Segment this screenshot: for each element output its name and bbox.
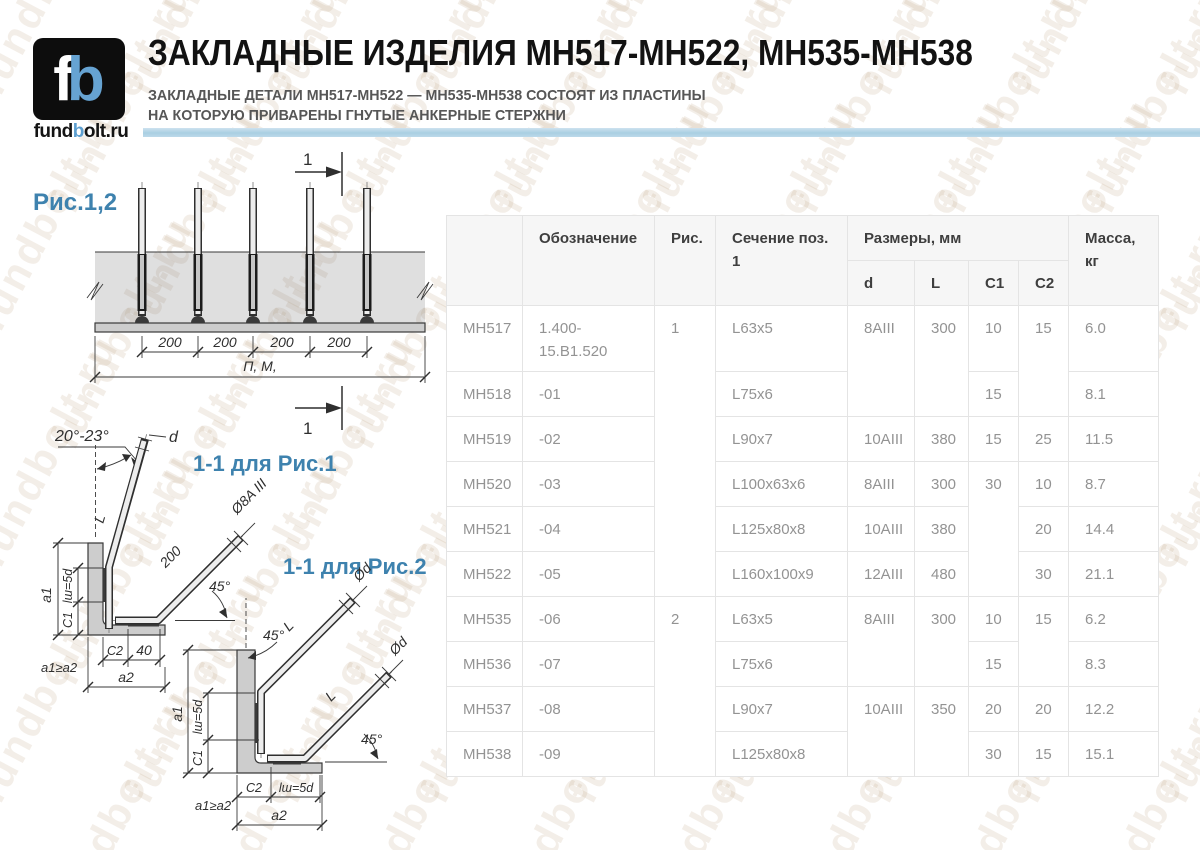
cell-d: 8AIII [848,306,915,417]
cell-d: 8AIII [848,462,915,507]
cell-section: L100x63x6 [716,462,848,507]
cell-c2: 15 [1019,597,1069,687]
cell-section: L63x5 [716,597,848,642]
cell-c2: 30 [1019,552,1069,597]
page-title: ЗАКЛАДНЫЕ ИЗДЕЛИЯ МН517-МН522, МН535-МН5… [148,32,973,74]
cell-c2: 25 [1019,417,1069,462]
table-row-mn517: МН517 1.400-15.В1.520 1 L63x5 8AIII 300 … [447,306,1159,372]
cell-l: 300 [915,462,969,507]
dim-a2-fig1-label: а2 [118,669,134,685]
logo-site-b: b [73,121,84,142]
cell-mass: 6.2 [1069,597,1159,642]
cell-c2: 10 [1019,462,1069,507]
cell-mass: 14.4 [1069,507,1159,552]
col-header-c2: C2 [1019,261,1069,306]
cell-designation: 1.400-15.В1.520 [523,306,655,372]
fig12-label: Рис.1,2 [33,189,117,216]
cell-mass: 8.1 [1069,372,1159,417]
cell-c2: 15 [1019,306,1069,417]
cell-name: МН537 [447,687,523,732]
cell-d: 10AIII [848,507,915,552]
section-cut-top-label: 1 [303,150,312,169]
cell-c1: 10 [969,306,1019,372]
cell-designation: -06 [523,597,655,642]
dim-phid-rod2-label: Ød [385,633,411,659]
dim-200-3: 200 [269,334,294,350]
cell-designation: -05 [523,552,655,597]
dim-phi8a-label: Ø8A III [227,475,270,518]
note-a1-ge-a2-fig1: а1≥а2 [41,660,78,675]
col-header-designation: Обозначение [523,216,655,306]
section-1-1-fig1-title: 1-1 для Рис.1 [193,451,337,476]
table-row-mn522: МН522 -05 L160x100x9 12AIII 480 30 21.1 [447,552,1159,597]
cell-name: МН520 [447,462,523,507]
cell-d: 12AIII [848,552,915,597]
fundbolt-logo: fb [33,38,125,120]
table-row-mn521: МН521 -04 L125x80x8 10AIII 380 20 14.4 [447,507,1159,552]
cell-l: 300 [915,306,969,417]
cell-mass: 11.5 [1069,417,1159,462]
col-header-d: d [848,261,915,306]
cell-designation: -03 [523,462,655,507]
cell-designation: -02 [523,417,655,462]
note-a1-ge-a2-fig2: а1≥а2 [195,798,232,813]
cell-c2: 20 [1019,687,1069,732]
cell-d: 10AIII [848,417,915,462]
dim-a2-fig2-label: а2 [271,807,287,823]
cell-l: 300 [915,597,969,687]
dim-200-2: 200 [212,334,237,350]
cell-mass: 15.1 [1069,732,1159,777]
page-subtitle: ЗАКЛАДНЫЕ ДЕТАЛИ МН517-МН522 — МН535-МН5… [148,86,706,126]
col-header-l: L [915,261,969,306]
cell-section: L63x5 [716,306,848,372]
table-row-mn520: МН520 -03 L100x63x6 8AIII 300 30 10 8.7 [447,462,1159,507]
dim-40-label: 40 [136,642,152,658]
cell-section: L125x80x8 [716,507,848,552]
dim-c2-fig1-label: С2 [107,644,123,658]
cell-mass: 8.7 [1069,462,1159,507]
table-row-mn519: МН519 -02 L90x7 10AIII 380 15 25 11.5 [447,417,1159,462]
cell-c1: 30 [969,462,1019,597]
dim-200-4: 200 [326,334,351,350]
dim-c1-fig1-label: С1 [61,612,75,628]
table-row-mn538: МН538 -09 L125x80x8 30 15 15.1 [447,732,1159,777]
dim-a1-fig1-label: а1 [38,587,54,603]
dim-200-1: 200 [157,334,182,350]
logo-site-pre: fund [34,121,73,142]
dim-L-fig1-label: L [91,513,109,525]
section-1-1-fig2-drawing: 1-1 для Рис.2 Ød L 45° Ød [175,540,485,850]
cell-c2: 20 [1019,507,1069,552]
col-header-mass: Масса, кг [1069,216,1159,306]
cell-section: L75x6 [716,372,848,417]
cell-section: L160x100x9 [716,552,848,597]
cell-designation: -09 [523,732,655,777]
cell-designation: -04 [523,507,655,552]
header-divider-bar [143,128,1200,137]
col-header-empty [447,216,523,306]
cell-section: L90x7 [716,417,848,462]
cell-c1: 10 [969,597,1019,642]
cell-c2: 15 [1019,732,1069,777]
cell-l: 380 [915,417,969,462]
cell-fig: 2 [655,597,716,777]
dim-a1-fig2-label: а1 [169,706,185,722]
cell-name: МН522 [447,552,523,597]
cell-mass: 6.0 [1069,306,1159,372]
cell-mass: 12.2 [1069,687,1159,732]
figure-plan-drawing: Рис.1,2 1 200 [25,140,445,440]
cell-name: МН519 [447,417,523,462]
dim-c1-fig2-label: С1 [191,750,205,766]
cell-l: 350 [915,687,969,777]
cell-name: МН517 [447,306,523,372]
cell-designation: -08 [523,687,655,732]
cell-name: МН536 [447,642,523,687]
cell-c1: 15 [969,642,1019,687]
spec-table: Обозначение Рис. Сечение поз. 1 Размеры,… [446,215,1159,777]
col-header-sizes: Размеры, мм [848,216,1069,261]
dim-45-rod1-label: 45° [263,627,285,643]
table-row-mn535: МН535 -06 2 L63x5 8AIII 300 10 15 6.2 [447,597,1159,642]
cell-c1: 15 [969,372,1019,417]
col-header-section: Сечение поз. 1 [716,216,848,306]
cell-d: 8AIII [848,597,915,687]
cell-designation: -01 [523,372,655,417]
catalog-page: fundbolt.rufundbolt.rufundbolt.rufundbol… [0,0,1200,850]
col-header-fig: Рис. [655,216,716,306]
subtitle-line-1: ЗАКЛАДНЫЕ ДЕТАЛИ МН517-МН522 — МН535-МН5… [148,87,706,104]
cell-section: L90x7 [716,687,848,732]
cell-l: 380 [915,507,969,552]
dim-lsh-left-fig2-label: lш=5d [191,699,205,734]
col-header-c1: C1 [969,261,1019,306]
cell-designation: -07 [523,642,655,687]
subtitle-line-2: НА КОТОРУЮ ПРИВАРЕНЫ ГНУТЫЕ АНКЕРНЫЕ СТЕ… [148,107,566,124]
cell-mass: 21.1 [1069,552,1159,597]
dim-lsh-bottom-fig2-label: lш=5d [279,781,314,795]
cell-c1: 15 [969,417,1019,462]
cell-section: L75x6 [716,642,848,687]
logo-letter-b: b [67,44,105,115]
cell-c1: 20 [969,687,1019,732]
cell-name: МН521 [447,507,523,552]
dim-d-label: d [169,429,179,446]
cell-name: МН538 [447,732,523,777]
cell-l: 480 [915,552,969,597]
cell-d: 10AIII [848,687,915,777]
logo-site-post: olt.ru [84,121,129,142]
angle-20-23-label: 20°-23° [54,428,109,445]
cell-name: МН518 [447,372,523,417]
cell-section: L125x80x8 [716,732,848,777]
cell-name: МН535 [447,597,523,642]
cell-mass: 8.3 [1069,642,1159,687]
dim-pm-label: П, М, [243,358,276,374]
dim-45-rod2-label: 45° [361,731,383,747]
cell-c1: 30 [969,732,1019,777]
table-row-mn537: МН537 -08 L90x7 10AIII 350 20 20 12.2 [447,687,1159,732]
dim-L-rod2-label: L [322,687,339,704]
cell-fig: 1 [655,306,716,597]
dim-c2-fig2-label: С2 [246,781,262,795]
dim-lsh-fig1-label: lш=5d [61,568,75,603]
